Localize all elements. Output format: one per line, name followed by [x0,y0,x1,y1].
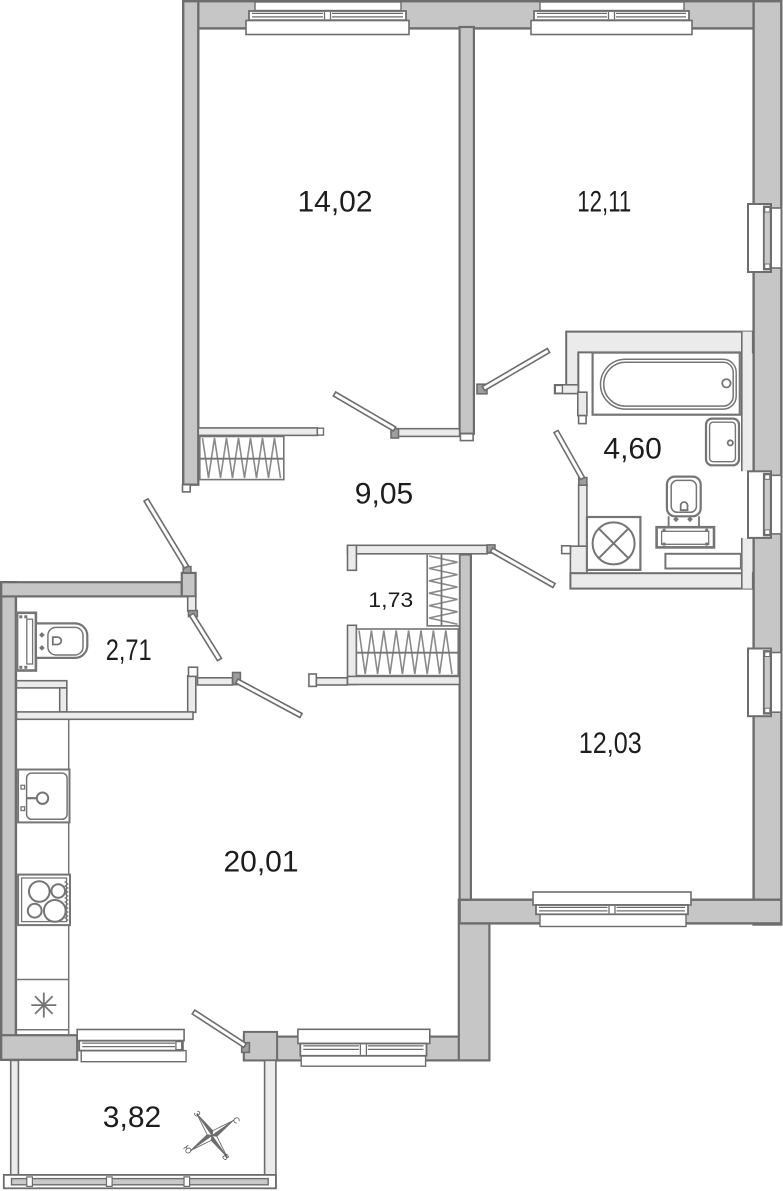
svg-text:2,71: 2,71 [106,634,152,667]
svg-text:1,73: 1,73 [368,588,413,612]
svg-text:З: З [192,1109,203,1119]
svg-text:9,05: 9,05 [355,478,413,511]
svg-text:14,02: 14,02 [297,186,372,219]
svg-text:Ю: Ю [181,1143,194,1156]
svg-text:3,82: 3,82 [103,1101,161,1134]
svg-text:12,11: 12,11 [577,186,631,219]
svg-text:В: В [220,1152,232,1163]
svg-text:12,03: 12,03 [579,727,642,760]
svg-text:4,60: 4,60 [603,433,661,466]
svg-text:20,01: 20,01 [223,846,298,879]
svg-text:С: С [231,1115,243,1126]
